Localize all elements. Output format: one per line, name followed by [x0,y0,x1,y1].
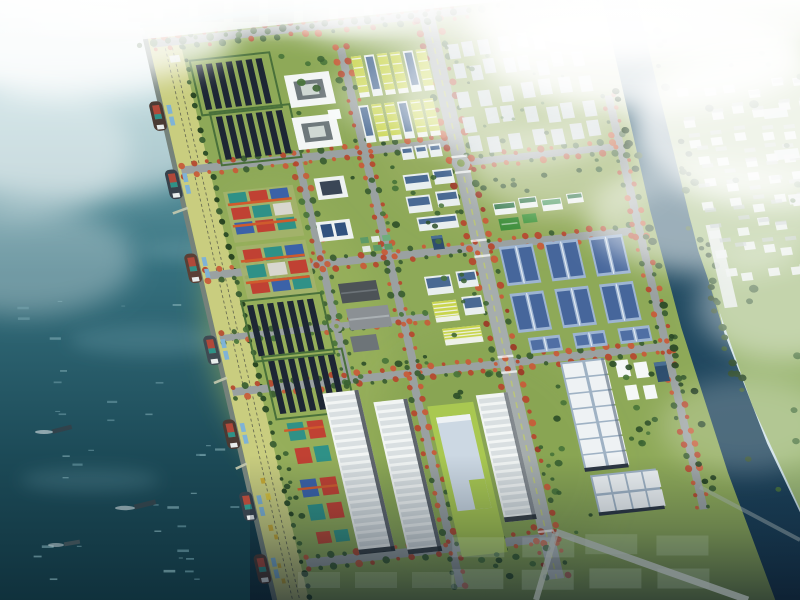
wave-dashes [177,525,186,527]
industrial-shed [350,334,379,352]
layer-foreground-shade [250,455,800,600]
green-roof-houses [360,237,369,244]
wave-dashes [200,454,206,455]
industrial-park-aerial-rendering: Aerial 3D rendering of a coastal industr… [0,0,800,600]
container-stacks [231,206,252,220]
blue-warehouses-low-pv [530,339,544,350]
campus-building-pv [463,297,482,309]
wave-dashes [34,556,42,558]
ghost-warehouses [656,536,708,556]
blue-warehouses-low-pv [575,335,589,346]
wave-dashes [230,506,239,508]
wave-dashes [54,381,62,383]
cargo-ship-cargo [227,432,235,438]
cloud [465,122,665,214]
boat-wake [48,543,64,547]
boat-wake [115,506,135,510]
ghost-warehouses [522,570,574,590]
wave-dashes [59,413,66,415]
container-stacks [252,204,273,218]
wave-dashes [185,570,194,572]
top-haze [0,0,800,42]
cargo-ship-bridge [157,124,165,129]
boat-wake [35,430,53,434]
wave-dashes [50,578,58,580]
green-roof-houses [384,243,393,250]
hall-roof-panels [569,393,592,409]
cargo-ship-bridge [172,193,180,198]
office-roof-inset [320,180,343,196]
cargo-ship-cargo [154,114,162,120]
hall-roof-panels [580,438,603,454]
wave-dashes [88,450,94,451]
wave-dashes [58,301,63,302]
ghost-warehouses [451,569,503,589]
blue-warehouses-low-pv [620,330,634,341]
wave-dashes [191,493,197,494]
aerial-rendering-svg: Aerial 3D rendering of a coastal industr… [0,0,800,600]
wave-dashes [215,448,225,450]
hall-roof-panels [566,377,589,393]
wave-dashes [18,317,30,320]
blue-warehouses-low-pv [591,333,605,344]
wave-dashes [206,445,211,446]
hall-roof-panels [576,423,599,439]
container-stacks [255,219,276,233]
ghost-warehouses [452,537,504,557]
container-stacks [276,217,297,231]
cargo-ship-cargo [189,266,197,272]
wave-dashes [107,401,117,403]
hall-roof-panels [562,362,585,378]
wave-dashes [107,419,114,421]
cargo-ship-bridge [211,359,219,364]
wave-dashes [60,370,67,372]
ghost-warehouses [412,572,454,588]
green-roof-houses [373,244,382,251]
wave-dashes [121,306,125,307]
sea-streak [20,468,160,492]
ghost-warehouses [298,572,340,588]
wave-dashes [154,530,161,532]
blue-warehouses-low-pv [546,338,560,349]
hall-roof-panels [573,408,596,424]
wave-dashes [62,455,69,457]
green-roof-houses [371,236,380,243]
wave-dashes [164,570,176,573]
cargo-ship-cargo [208,348,216,354]
cloud [330,53,520,137]
blue-warehouses-low-pv [636,328,650,339]
container-stacks [273,202,294,216]
cargo-ship-bridge [192,277,200,282]
wave-dashes [167,506,179,509]
wave-dashes [179,558,183,559]
office-building [316,219,354,242]
wave-dashes [77,546,82,547]
cargo-ship-cargo [170,182,178,188]
wave-dashes [186,558,194,560]
wave-dashes [72,464,82,466]
ghost-warehouses [589,568,641,588]
wave-dashes [156,382,164,384]
container-stacks [246,264,267,279]
green-roof-houses [362,246,371,253]
cargo-ship-bridge [230,443,238,448]
wave-dashes [63,477,69,478]
courtyard-core [308,126,326,138]
wave-dashes [194,579,200,580]
container-stacks [234,221,255,235]
container-stacks [267,262,288,277]
sports-court [522,213,538,223]
wave-dashes [177,549,189,552]
wave-dashes [50,337,61,339]
wave-dashes [17,307,28,310]
ghost-warehouses [355,572,397,588]
green-roof-houses [382,235,391,242]
wave-dashes [173,304,182,306]
wave-dashes [55,411,60,412]
container-stacks [288,259,309,274]
wave-dashes [145,414,152,416]
